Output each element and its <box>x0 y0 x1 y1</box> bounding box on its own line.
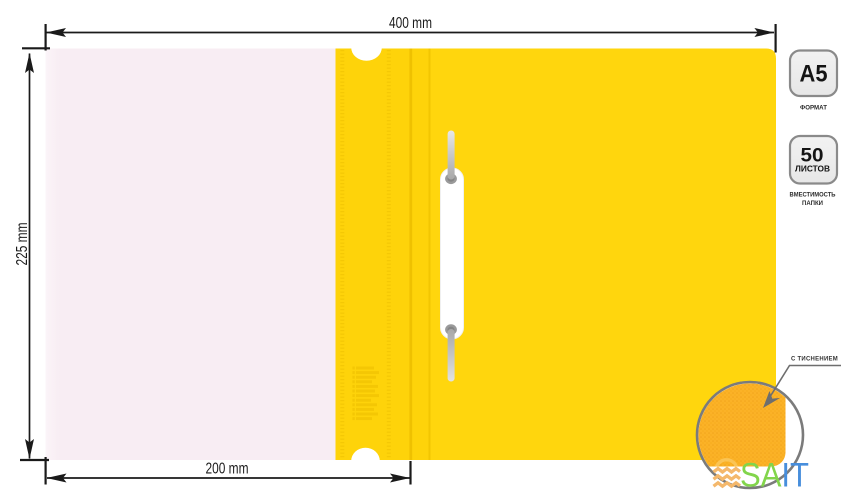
svg-text:ВМЕСТИМОСТЬ: ВМЕСТИМОСТЬ <box>790 192 836 199</box>
svg-text:ПАПКИ: ПАПКИ <box>802 200 823 207</box>
svg-text:С ТИСНЕНИЕМ: С ТИСНЕНИЕМ <box>791 356 838 363</box>
svg-text:А5: А5 <box>800 61 828 88</box>
svg-text:400 mm: 400 mm <box>389 15 432 32</box>
svg-text:200 mm: 200 mm <box>206 461 249 478</box>
svg-text:SAIT: SAIT <box>740 457 809 495</box>
svg-text:ЛИСТОВ: ЛИСТОВ <box>795 164 830 174</box>
svg-text:225 mm: 225 mm <box>14 223 31 266</box>
svg-text:ФОРМАТ: ФОРМАТ <box>800 105 827 112</box>
